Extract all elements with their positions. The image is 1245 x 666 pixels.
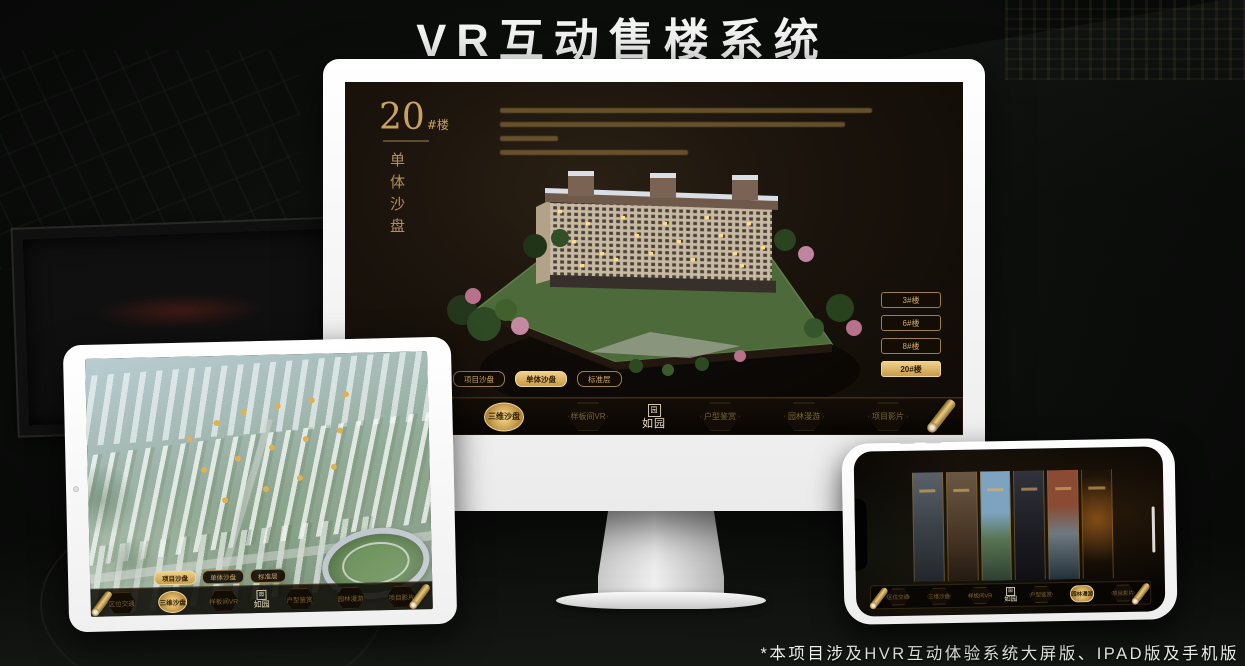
logo-seal-icon: 园 (648, 404, 661, 417)
tab-single-sandbox[interactable]: 单体沙盘 (202, 569, 244, 584)
sandbox-tab-group: 项目沙盘 单体沙盘 标准层 (453, 371, 622, 387)
scene-panel[interactable] (1047, 470, 1080, 580)
floor-button-6[interactable]: 6#楼 (881, 315, 941, 331)
building-subtitle-vertical: 单体沙盘 (387, 152, 408, 256)
nav-item-unit-gallery[interactable]: 户型鉴赏 (690, 402, 750, 432)
building-model-3d[interactable] (440, 160, 870, 435)
logo-name: 如园 (254, 601, 270, 609)
footnote-text: *本项目涉及HVR互动体验系统大屏版、IPAD版及手机版 (760, 640, 1239, 664)
nav-item-unit-gallery[interactable]: 户型鉴赏 (1024, 586, 1058, 604)
nav-item-3d-sandbox[interactable]: 三维沙盘 (151, 590, 193, 613)
brand-logo: 园 如园 (642, 404, 666, 430)
scene-panel[interactable] (980, 471, 1013, 581)
brand-logo: 园 如园 (253, 590, 269, 609)
floor-button-20[interactable]: 20#楼 (881, 361, 941, 377)
monitor-stand (598, 511, 724, 595)
monitor-base (556, 592, 766, 609)
brand-logo: 园 如园 (1004, 587, 1017, 604)
scene-panel[interactable] (912, 472, 945, 582)
building-number-suffix: #楼 (427, 118, 449, 132)
tab-standard-floor[interactable]: 标准层 (250, 568, 286, 583)
ipad-screen: 项目沙盘 单体沙盘 标准层 区位交通 三维沙盘 样板间VR 园 如园 户型鉴赏 … (85, 351, 433, 617)
tab-single-sandbox[interactable]: 单体沙盘 (515, 371, 567, 387)
phone-screen: 区位交通 三维沙盘 样板间VR 园 如园 户型鉴赏 园林漫游 项目影片 (854, 446, 1166, 616)
scene-panel[interactable] (1081, 469, 1114, 579)
ipad-sandbox-tab-group: 项目沙盘 单体沙盘 标准层 (154, 568, 286, 585)
building-title-block: 20#楼 单体沙盘 (379, 100, 449, 256)
tab-standard-floor[interactable]: 标准层 (577, 371, 622, 387)
floor-button-8[interactable]: 8#楼 (881, 338, 941, 354)
nav-item-garden-roam[interactable]: 园林漫游 (1065, 585, 1099, 603)
stage: VR互动售楼系统 20#楼 单体沙盘 (0, 0, 1245, 666)
ipad-device: 项目沙盘 单体沙盘 标准层 区位交通 三维沙盘 样板间VR 园 如园 户型鉴赏 … (63, 337, 457, 633)
nav-item-unit-gallery[interactable]: 户型鉴赏 (278, 587, 320, 610)
phone-volume-button (925, 440, 941, 443)
nav-item-showroom-vr[interactable]: 样板间VR (202, 589, 244, 612)
description-paragraph (500, 108, 872, 164)
building-number: 20 (379, 97, 425, 138)
floor-button-3[interactable]: 3#楼 (881, 292, 941, 308)
ipad-camera-icon (73, 486, 79, 492)
logo-seal-icon: 园 (1006, 587, 1015, 596)
english-caption-line (383, 140, 429, 142)
plaque-calligraphy-smudge (95, 291, 266, 331)
nav-item-garden-roam[interactable]: 园林漫游 (329, 586, 371, 609)
scene-panel[interactable] (946, 472, 979, 582)
phone-device: 区位交通 三维沙盘 样板间VR 园 如园 户型鉴赏 园林漫游 项目影片 (841, 438, 1177, 625)
nav-item-3d-sandbox[interactable]: 三维沙盘 (474, 402, 534, 432)
nav-item-garden-roam[interactable]: 园林漫游 (774, 402, 834, 432)
logo-seal-icon: 园 (256, 590, 266, 600)
nav-item-showroom-vr[interactable]: 样板间VR (963, 587, 997, 605)
nav-item-location-traffic[interactable]: 区位交通 (100, 591, 142, 614)
nav-item-location-traffic[interactable]: 区位交通 (881, 588, 915, 606)
logo-name: 如园 (1004, 597, 1017, 604)
nav-item-project-film[interactable]: 项目影片 (858, 402, 918, 432)
nav-item-showroom-vr[interactable]: 样板间VR (558, 402, 618, 432)
phone-bottom-nav: 区位交通 三维沙盘 样板间VR 园 如园 户型鉴赏 园林漫游 项目影片 (870, 581, 1151, 610)
phone-volume-button (899, 441, 915, 444)
scene-panel-gallery (912, 469, 1114, 581)
tab-project-sandbox[interactable]: 项目沙盘 (453, 371, 505, 387)
phone-notch (854, 498, 867, 570)
scene-panel[interactable] (1013, 470, 1046, 580)
logo-name: 如园 (642, 419, 666, 430)
tab-project-sandbox[interactable]: 项目沙盘 (154, 570, 196, 585)
nav-item-3d-sandbox[interactable]: 三维沙盘 (922, 587, 956, 605)
floor-button-group: 3#楼 6#楼 8#楼 20#楼 (881, 292, 941, 377)
scroll-handle-icon[interactable] (927, 398, 957, 433)
